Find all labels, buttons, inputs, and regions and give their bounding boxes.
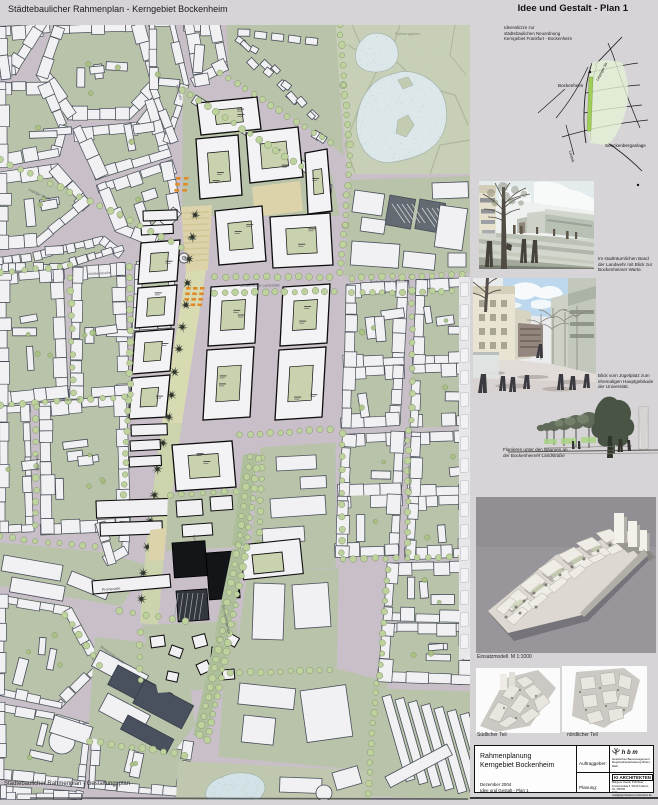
svg-text:Warte: Warte: [188, 237, 196, 241]
svg-text:Bockenheimer Landstraße: Bockenheimer Landstraße: [240, 283, 280, 288]
svg-text:Jordanstraße: Jordanstraße: [60, 397, 80, 402]
svg-text:Senckenberganlage: Senckenberganlage: [605, 143, 646, 148]
svg-text:Bockenheimer Landstraße: Bockenheimer Landstraße: [370, 279, 410, 284]
svg-text:Landstr.: Landstr.: [568, 150, 575, 163]
svg-text:Kiesstraße: Kiesstraße: [35, 455, 40, 471]
svg-text:Bockenheim: Bockenheim: [558, 83, 583, 88]
svg-text:Palmengarten: Palmengarten: [395, 31, 420, 36]
